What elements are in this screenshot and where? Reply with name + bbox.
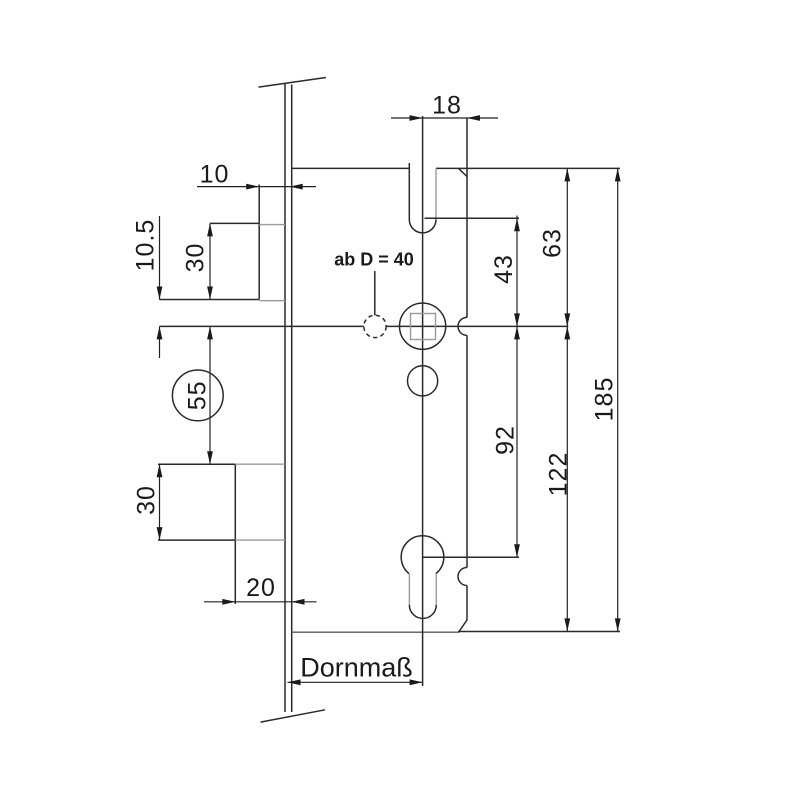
svg-text:ab D = 40: ab D = 40	[334, 250, 414, 270]
svg-text:30: 30	[133, 485, 161, 515]
svg-text:30: 30	[182, 243, 210, 273]
svg-text:10.5: 10.5	[132, 219, 160, 272]
svg-text:43: 43	[490, 254, 518, 284]
svg-text:10: 10	[200, 161, 230, 189]
svg-text:Dornmaß: Dornmaß	[300, 652, 413, 682]
svg-text:63: 63	[539, 228, 567, 258]
svg-text:18: 18	[432, 92, 462, 120]
svg-text:20: 20	[246, 574, 276, 602]
svg-text:55: 55	[184, 380, 212, 410]
svg-text:92: 92	[492, 425, 520, 455]
svg-text:122: 122	[545, 452, 573, 497]
svg-text:185: 185	[591, 377, 619, 422]
